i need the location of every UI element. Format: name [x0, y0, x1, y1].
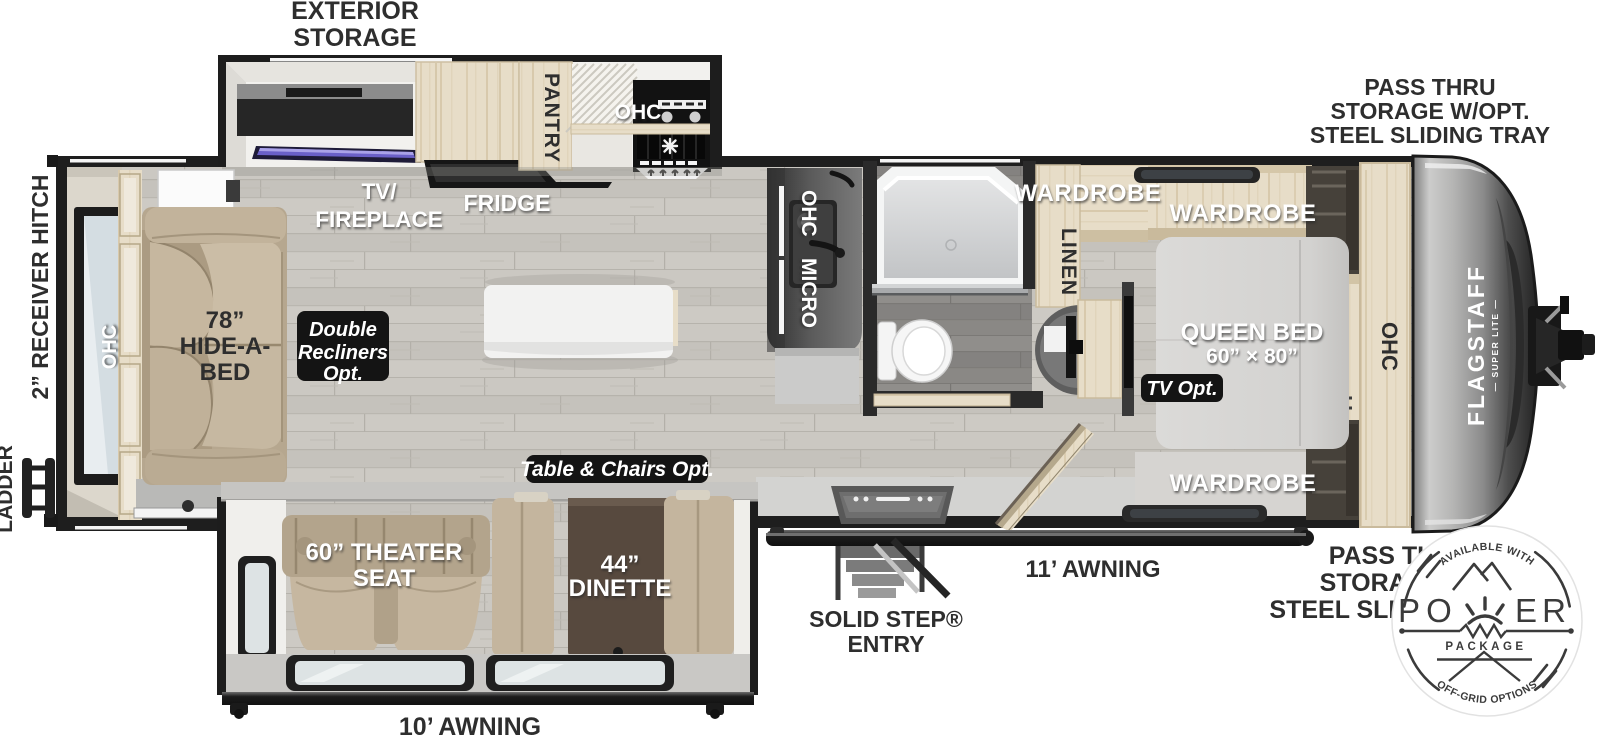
svg-text:10’ AWNING: 10’ AWNING [399, 713, 541, 738]
svg-text:60” × 80”: 60” × 80” [1206, 345, 1298, 368]
svg-text:WARDROBE: WARDROBE [1170, 200, 1317, 227]
svg-text:HIDE-A-: HIDE-A- [180, 333, 271, 360]
svg-text:WARDROBE: WARDROBE [1170, 470, 1317, 497]
svg-text:DINETTE: DINETTE [569, 575, 672, 602]
svg-text:TV Opt.: TV Opt. [1146, 378, 1217, 400]
svg-text:PACKAGE: PACKAGE [1445, 641, 1526, 653]
svg-text:LADDER: LADDER [0, 445, 17, 533]
svg-text:OHC: OHC [99, 325, 121, 369]
svg-text:11’ AWNING: 11’ AWNING [1025, 556, 1160, 583]
svg-text:SEAT: SEAT [353, 565, 416, 592]
svg-text:MICRO: MICRO [797, 258, 820, 328]
svg-text:P: P [1398, 592, 1420, 629]
svg-text:FIREPLACE: FIREPLACE [315, 207, 443, 232]
svg-text:SOLID STEP®: SOLID STEP® [809, 606, 963, 632]
svg-text:QUEEN BED: QUEEN BED [1181, 319, 1324, 346]
svg-text:60” THEATER: 60” THEATER [306, 539, 463, 566]
svg-text:LINEN: LINEN [1057, 228, 1080, 296]
svg-text:STORAGE W/OPT.: STORAGE W/OPT. [1331, 98, 1530, 124]
svg-text:E: E [1515, 592, 1537, 629]
svg-text:R: R [1542, 592, 1566, 629]
svg-text:PANTRY: PANTRY [540, 73, 563, 163]
svg-text:O: O [1426, 592, 1452, 629]
svg-text:2” RECEIVER HITCH: 2” RECEIVER HITCH [27, 175, 53, 400]
svg-text:STEEL SLIDING TRAY: STEEL SLIDING TRAY [1310, 122, 1550, 148]
svg-text:FLAGSTAFF: FLAGSTAFF [1463, 264, 1489, 426]
svg-text:OHC: OHC [797, 190, 820, 237]
svg-text:WARDROBE: WARDROBE [1015, 180, 1162, 207]
svg-text:EXTERIOR: EXTERIOR [291, 0, 419, 25]
svg-text:78”: 78” [206, 307, 245, 334]
svg-text:OHC: OHC [615, 101, 662, 124]
svg-text:OHC: OHC [1377, 322, 1402, 371]
svg-text:Table & Chairs Opt.: Table & Chairs Opt. [520, 458, 714, 481]
svg-text:FRIDGE: FRIDGE [464, 190, 551, 216]
svg-text:STORAGE: STORAGE [293, 24, 416, 52]
svg-text:TV/: TV/ [361, 179, 397, 204]
svg-text:Recliners: Recliners [298, 342, 388, 364]
svg-text:44”: 44” [601, 551, 640, 578]
svg-text:BED: BED [200, 359, 251, 386]
svg-text:— SUPER LITE —: — SUPER LITE — [1490, 299, 1500, 392]
svg-text:ENTRY: ENTRY [847, 631, 924, 657]
svg-text:Double: Double [309, 319, 377, 341]
svg-text:PASS THRU: PASS THRU [1364, 74, 1495, 100]
svg-text:Opt.: Opt. [323, 363, 363, 385]
